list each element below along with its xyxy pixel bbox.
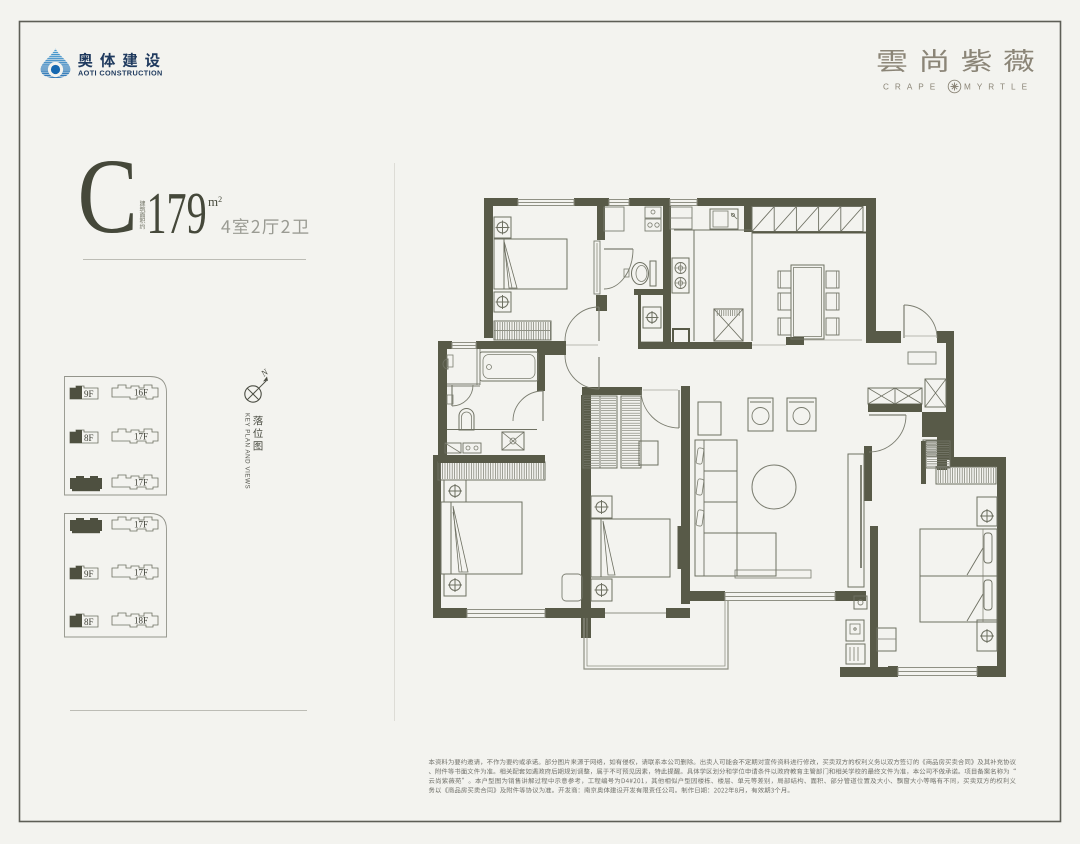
svg-text:8F: 8F bbox=[84, 617, 94, 627]
svg-text:17F: 17F bbox=[134, 568, 148, 578]
svg-text:MYRTLE: MYRTLE bbox=[964, 83, 1033, 92]
svg-text:C: C bbox=[78, 138, 138, 256]
svg-text:17F: 17F bbox=[134, 520, 148, 530]
svg-text:17F: 17F bbox=[134, 478, 148, 488]
svg-text:179: 179 bbox=[147, 180, 207, 245]
svg-text:9F: 9F bbox=[84, 389, 94, 399]
svg-text:17F: 17F bbox=[134, 432, 148, 442]
svg-text:16F: 16F bbox=[134, 388, 148, 398]
svg-text:9F: 9F bbox=[84, 569, 94, 579]
svg-text:8F: 8F bbox=[84, 433, 94, 443]
svg-text:CRAPE: CRAPE bbox=[883, 83, 941, 92]
svg-text:KEY PLAN AND VIEWS: KEY PLAN AND VIEWS bbox=[244, 413, 251, 489]
svg-text:18F: 18F bbox=[134, 616, 148, 626]
svg-text:AOTI CONSTRUCTION: AOTI CONSTRUCTION bbox=[78, 69, 163, 78]
